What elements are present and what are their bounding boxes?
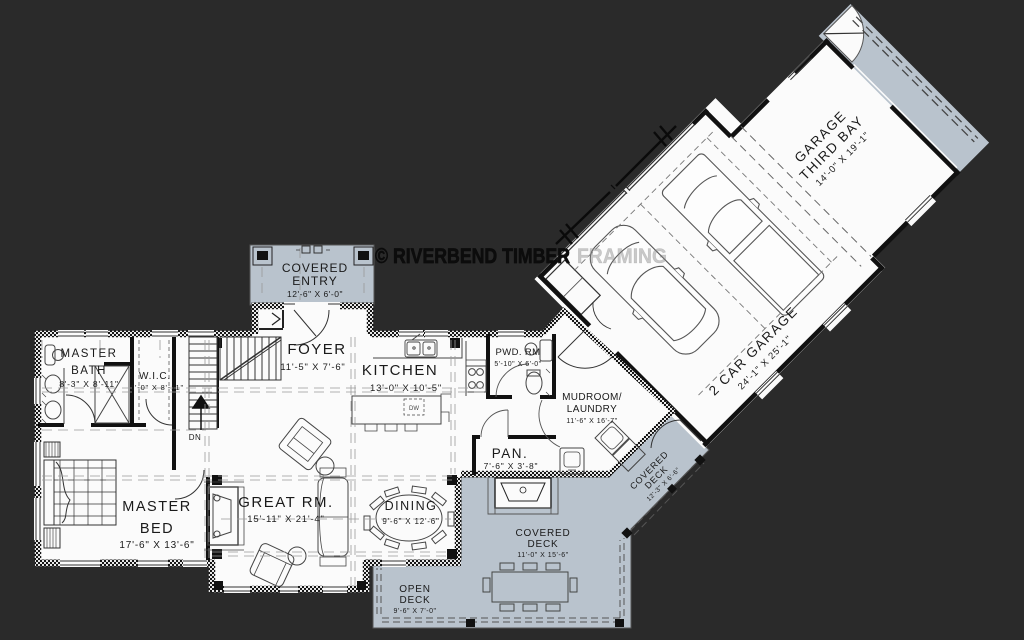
svg-text:15'-11" X 21'-4": 15'-11" X 21'-4" [247, 514, 324, 525]
svg-text:11'-6" X 16'-7": 11'-6" X 16'-7" [566, 418, 617, 425]
svg-text:BED: BED [140, 521, 174, 537]
svg-text:13'-0" X 10'-5": 13'-0" X 10'-5" [370, 383, 442, 394]
svg-text:© RIVERBEND TIMBER: © RIVERBEND TIMBER [375, 245, 570, 268]
svg-text:FRAMING: FRAMING [577, 245, 667, 268]
svg-text:9'-6" X 12'-6": 9'-6" X 12'-6" [382, 517, 439, 526]
svg-text:9'-6" X 7'-0": 9'-6" X 7'-0" [394, 608, 437, 615]
svg-text:FOYER: FOYER [287, 341, 346, 358]
svg-text:W.I.C.: W.I.C. [139, 371, 171, 382]
svg-text:PAN.: PAN. [492, 446, 529, 461]
svg-text:GREAT RM.: GREAT RM. [238, 494, 333, 511]
svg-text:5'-0" X 8'-11": 5'-0" X 8'-11" [130, 383, 184, 392]
svg-text:DECK: DECK [400, 595, 431, 606]
svg-text:BATH: BATH [71, 365, 107, 377]
svg-text:5'-10" X 6'-0": 5'-10" X 6'-0" [494, 361, 541, 368]
svg-text:COVERED: COVERED [515, 528, 570, 539]
svg-text:MUDROOM/: MUDROOM/ [562, 392, 622, 403]
svg-text:ENTRY: ENTRY [292, 274, 337, 288]
svg-text:KITCHEN: KITCHEN [362, 362, 438, 379]
svg-text:11'-5" X 7'-6": 11'-5" X 7'-6" [280, 362, 345, 373]
svg-text:12'-6" X 6'-0": 12'-6" X 6'-0" [287, 289, 343, 299]
svg-text:LAUNDRY: LAUNDRY [567, 404, 617, 415]
svg-text:OPEN: OPEN [399, 584, 431, 595]
svg-text:MASTER: MASTER [122, 499, 191, 515]
svg-text:17'-6" X 13'-6": 17'-6" X 13'-6" [119, 540, 194, 551]
svg-text:DW: DW [409, 406, 419, 412]
svg-text:MASTER: MASTER [61, 348, 118, 360]
svg-text:11'-0" X 15'-6": 11'-0" X 15'-6" [517, 552, 568, 559]
svg-text:DN: DN [189, 433, 202, 442]
svg-text:DECK: DECK [528, 539, 559, 550]
svg-text:8'-3" X 8'-11": 8'-3" X 8'-11" [59, 379, 119, 389]
svg-text:7'-6" X 3'-8": 7'-6" X 3'-8" [484, 461, 539, 471]
svg-text:DINING: DINING [385, 499, 438, 513]
svg-text:COVERED: COVERED [282, 261, 348, 275]
svg-text:PWD. RM: PWD. RM [495, 347, 540, 358]
